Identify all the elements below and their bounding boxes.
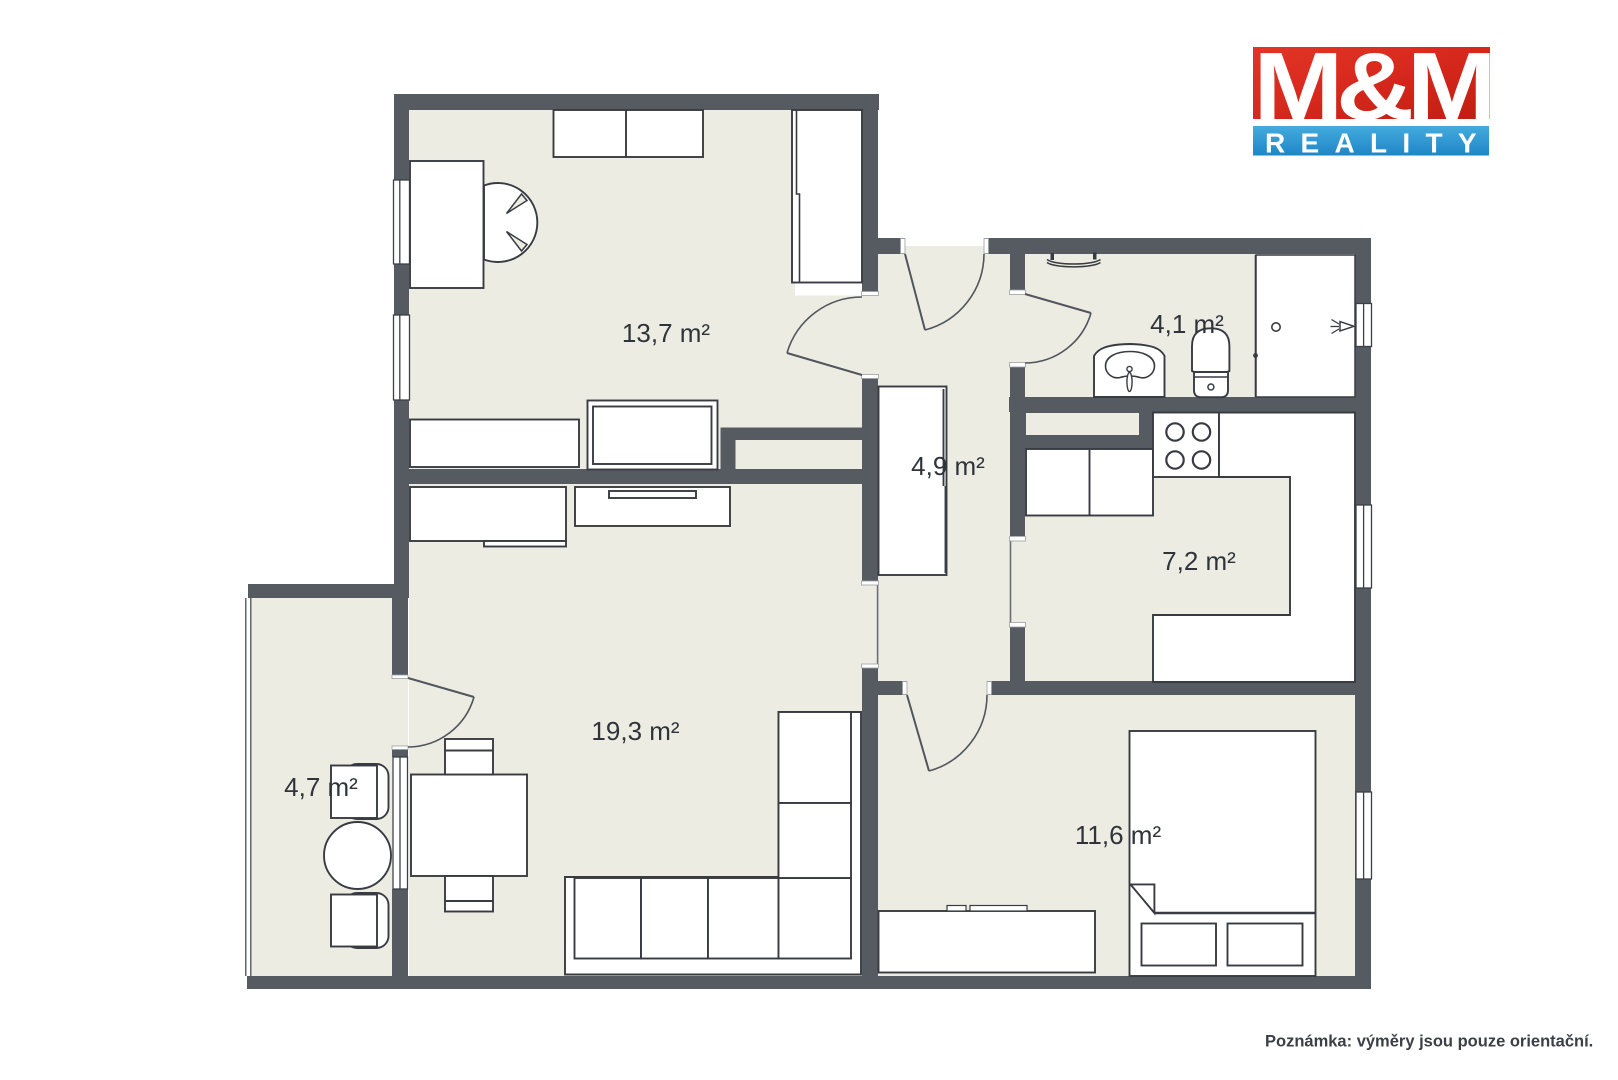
svg-text:M&M: M&M <box>1253 33 1490 140</box>
svg-text:4,9 m²: 4,9 m² <box>911 451 985 481</box>
svg-text:11,6 m²: 11,6 m² <box>1075 820 1162 850</box>
svg-text:7,2 m²: 7,2 m² <box>1162 546 1236 576</box>
svg-text:4,1 m²: 4,1 m² <box>1150 309 1224 339</box>
svg-text:4,7 m²: 4,7 m² <box>284 772 358 802</box>
svg-text:REALITY: REALITY <box>1265 128 1492 159</box>
svg-text:13,7 m²: 13,7 m² <box>622 318 710 348</box>
svg-text:19,3 m²: 19,3 m² <box>591 716 679 746</box>
svg-text:Poznámka: výměry jsou pouze or: Poznámka: výměry jsou pouze orientační. <box>1265 1033 1593 1051</box>
